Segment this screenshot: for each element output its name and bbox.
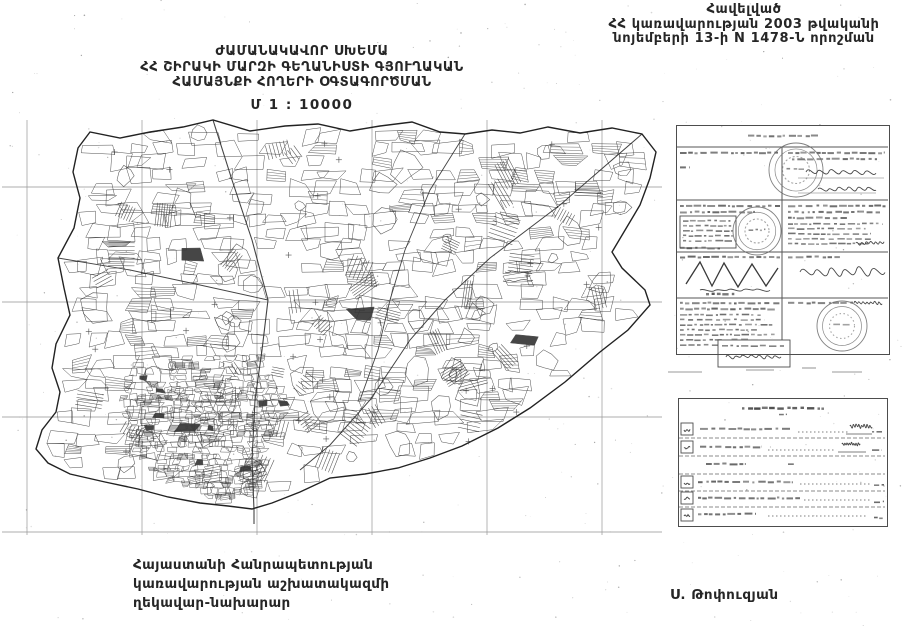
land-fund-legend-box (678, 398, 888, 527)
title-line-1: ԺԱՄԱՆԱԿԱՎՈՐ ՍԽԵՄԱ (126, 44, 478, 60)
footer-office-title: Հայաստանի Հանրապետության կառավարության ա… (133, 556, 389, 613)
footer-line-1: Հայաստանի Հանրապետության (133, 556, 389, 575)
appendix-line-2: ՀՀ կառավարության 2003 թվականի (588, 18, 900, 33)
appendix-line-3: նոյեմբերի 13-ի N 1478-Ն որոշման (588, 32, 900, 47)
appendix-line-1: Հավելված (588, 3, 900, 18)
approval-signatures-box (676, 125, 890, 355)
appendix-note: Հավելված ՀՀ կառավարության 2003 թվականի ն… (588, 3, 900, 47)
title-line-2: ՀՀ ՇԻՐԱԿԻ ՄԱՐԶԻ ԳԵՂԱՆԻՍՏԻ ԳՅՈՒՂԱԿԱՆ (126, 60, 478, 76)
signatory-name: Ս. Թոփուզյան (670, 587, 779, 603)
footer-line-3: ղեկավար-նախարար (133, 594, 389, 613)
field-roads (58, 120, 642, 524)
scanned-map-sheet: Հավելված ՀՀ կառավարության 2003 թվականի ն… (0, 0, 903, 626)
map-title: ԺԱՄԱՆԱԿԱՎՈՐ ՍԽԵՄԱ ՀՀ ՇԻՐԱԿԻ ՄԱՐԶԻ ԳԵՂԱՆԻ… (126, 44, 478, 91)
title-line-3: ՀԱՄԱՅՆՔԻ ՀՈՂԵՐԻ ՕԳՏԱԳՈՐԾՄԱՆ (126, 75, 478, 91)
map-scale: Մ 1 : 10000 (126, 97, 478, 113)
map-annotation-handwriting (503, 271, 533, 282)
footer-line-2: կառավարության աշխատակազմի (133, 575, 389, 594)
